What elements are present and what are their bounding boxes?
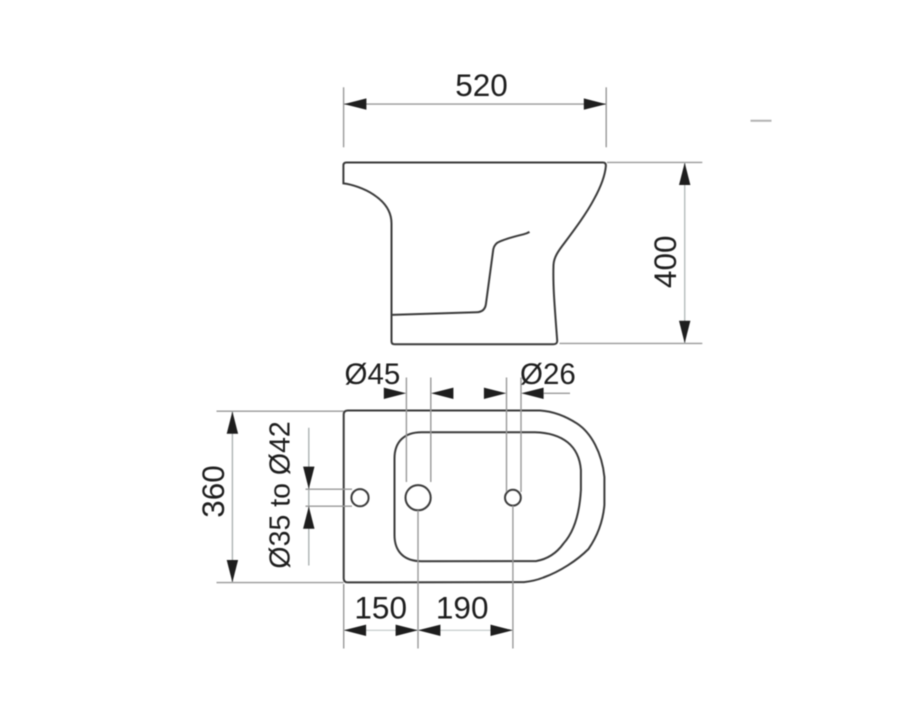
svg-text:360: 360 xyxy=(195,465,231,518)
svg-text:150: 150 xyxy=(354,589,407,625)
svg-text:Ø35 to Ø42: Ø35 to Ø42 xyxy=(265,421,297,568)
svg-text:520: 520 xyxy=(455,67,508,103)
svg-text:Ø45: Ø45 xyxy=(345,358,401,391)
svg-text:400: 400 xyxy=(647,236,683,289)
svg-text:190: 190 xyxy=(436,589,489,625)
svg-text:Ø26: Ø26 xyxy=(520,358,576,391)
